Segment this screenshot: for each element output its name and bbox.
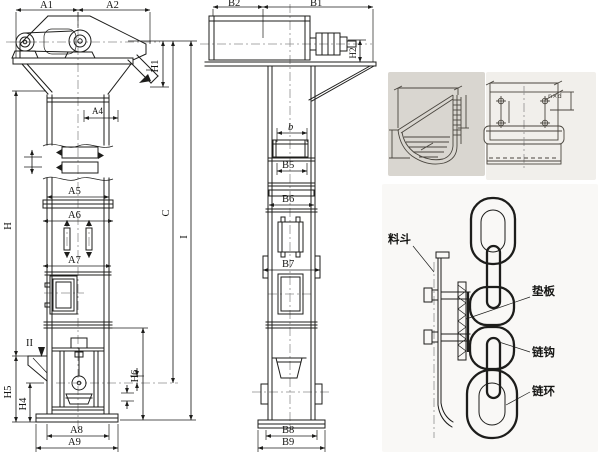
inlet-chute [28,356,47,381]
label-chain-hook: 链钩 [532,345,555,359]
side-dimensions: B2 B1 H2 b B5 B6 B7 [213,0,373,452]
dim-b1: B1 [310,0,322,9]
takeup-screw-box [71,338,87,348]
label-pad-plate: 垫板 [532,284,555,298]
label-chain-link: 链环 [532,384,555,398]
dim-b8: B8 [282,425,294,436]
inspection-door [45,276,77,314]
front-dimensions: A1 A2 A4 A5 A6 A7 A8 A9 [3,0,197,452]
dim-b9: B9 [282,437,294,448]
dim-h: H [3,222,14,230]
dim-a1: A1 [40,0,53,11]
drive-sprocket-icon [25,29,95,58]
dim-b6: B6 [282,194,294,205]
dim-b2: B2 [228,0,240,9]
dim-a2: A2 [106,0,119,11]
side-bucket [273,140,308,157]
dim-i: I [179,235,190,239]
bucket-detail [388,72,485,176]
side-view: B2 B1 H2 b B5 B6 B7 [200,0,376,452]
head-assembly: I [12,16,158,94]
section-ii-label: II [26,338,33,349]
elevator-drawing-svg: I [0,0,600,456]
dim-a7: A7 [68,255,81,266]
side-casing [263,66,320,420]
boot-bucket [276,358,302,378]
holes-note: n×d [548,92,562,100]
dim-a6: A6 [68,210,81,221]
dim-a8: A8 [70,425,83,436]
dim-h2: H2 [348,48,358,59]
plate-detail: n×d [484,72,596,180]
section-ii-marker: II [26,338,45,357]
dim-a9: A9 [68,437,81,448]
dim-b: b [288,122,293,133]
front-view: I [3,0,197,452]
dim-h1: H1 [150,60,161,73]
drawing-canvas: I [0,0,600,456]
label-bucket: 料斗 [388,232,411,246]
dim-b5: B5 [282,160,294,171]
dim-a5: A5 [68,186,81,197]
dim-h5: H5 [3,386,14,399]
chain-detail: 料斗 垫板 链钩 链环 [382,184,598,452]
dim-c: C [161,209,172,216]
dim-b7: B7 [282,259,294,270]
casing-break-buckets [24,144,113,180]
side-centerlines [200,4,372,432]
dim-h4: H4 [18,397,29,411]
dim-a4: A4 [92,106,103,116]
rail-bracket [278,217,303,257]
